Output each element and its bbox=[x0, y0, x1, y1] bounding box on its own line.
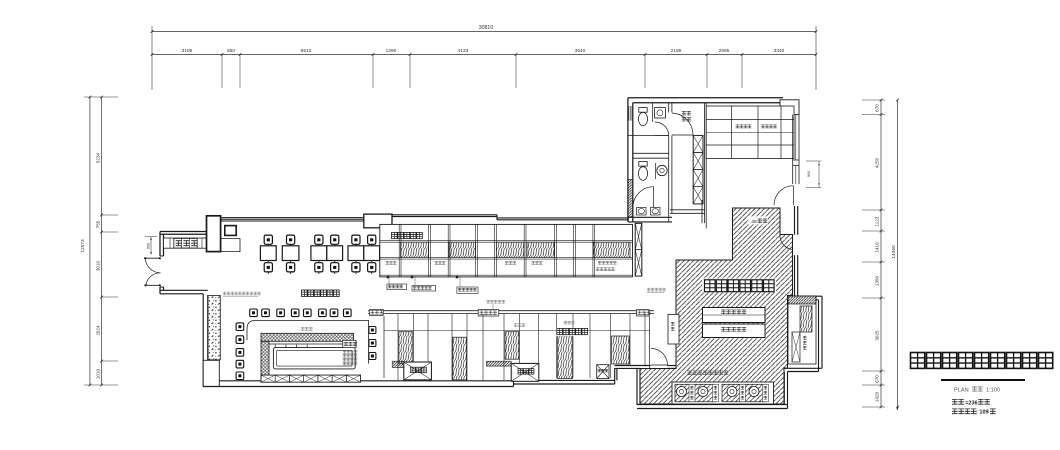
svg-text:1410: 1410 bbox=[875, 242, 880, 253]
svg-text:PLAN: PLAN bbox=[954, 388, 969, 394]
svg-text:4133: 4133 bbox=[458, 48, 469, 54]
svg-text:1290: 1290 bbox=[386, 48, 397, 54]
svg-text:1350: 1350 bbox=[875, 275, 880, 286]
svg-text:670: 670 bbox=[875, 375, 880, 383]
svg-text:3340: 3340 bbox=[774, 48, 785, 54]
svg-text:2595: 2595 bbox=[719, 48, 730, 54]
svg-text:30810: 30810 bbox=[479, 25, 494, 31]
svg-text:4255: 4255 bbox=[875, 157, 880, 168]
svg-text:=236: =236 bbox=[965, 401, 978, 407]
svg-text:2188: 2188 bbox=[671, 48, 682, 54]
svg-text:2824: 2824 bbox=[96, 325, 101, 336]
svg-text:650: 650 bbox=[227, 48, 235, 54]
svg-text:950: 950 bbox=[147, 243, 151, 249]
svg-text:670: 670 bbox=[875, 104, 880, 112]
svg-text:1:100: 1:100 bbox=[986, 388, 1000, 394]
svg-text:3025: 3025 bbox=[875, 330, 880, 341]
svg-text:1123: 1123 bbox=[875, 216, 880, 226]
svg-text:3010: 3010 bbox=[96, 260, 101, 271]
svg-text:1420: 1420 bbox=[875, 391, 880, 402]
svg-text:14060: 14060 bbox=[891, 245, 897, 259]
svg-text:: 109: : 109 bbox=[976, 410, 989, 416]
svg-text:12573: 12573 bbox=[80, 239, 86, 253]
svg-text:5234: 5234 bbox=[96, 152, 101, 163]
svg-text:900: 900 bbox=[807, 171, 811, 177]
svg-text:45: 45 bbox=[752, 219, 758, 225]
svg-text:6510: 6510 bbox=[301, 48, 312, 54]
svg-text:755: 755 bbox=[96, 220, 101, 228]
svg-text:3195: 3195 bbox=[182, 48, 193, 54]
svg-text:1010: 1010 bbox=[96, 368, 101, 379]
svg-text:3540: 3540 bbox=[575, 48, 586, 54]
